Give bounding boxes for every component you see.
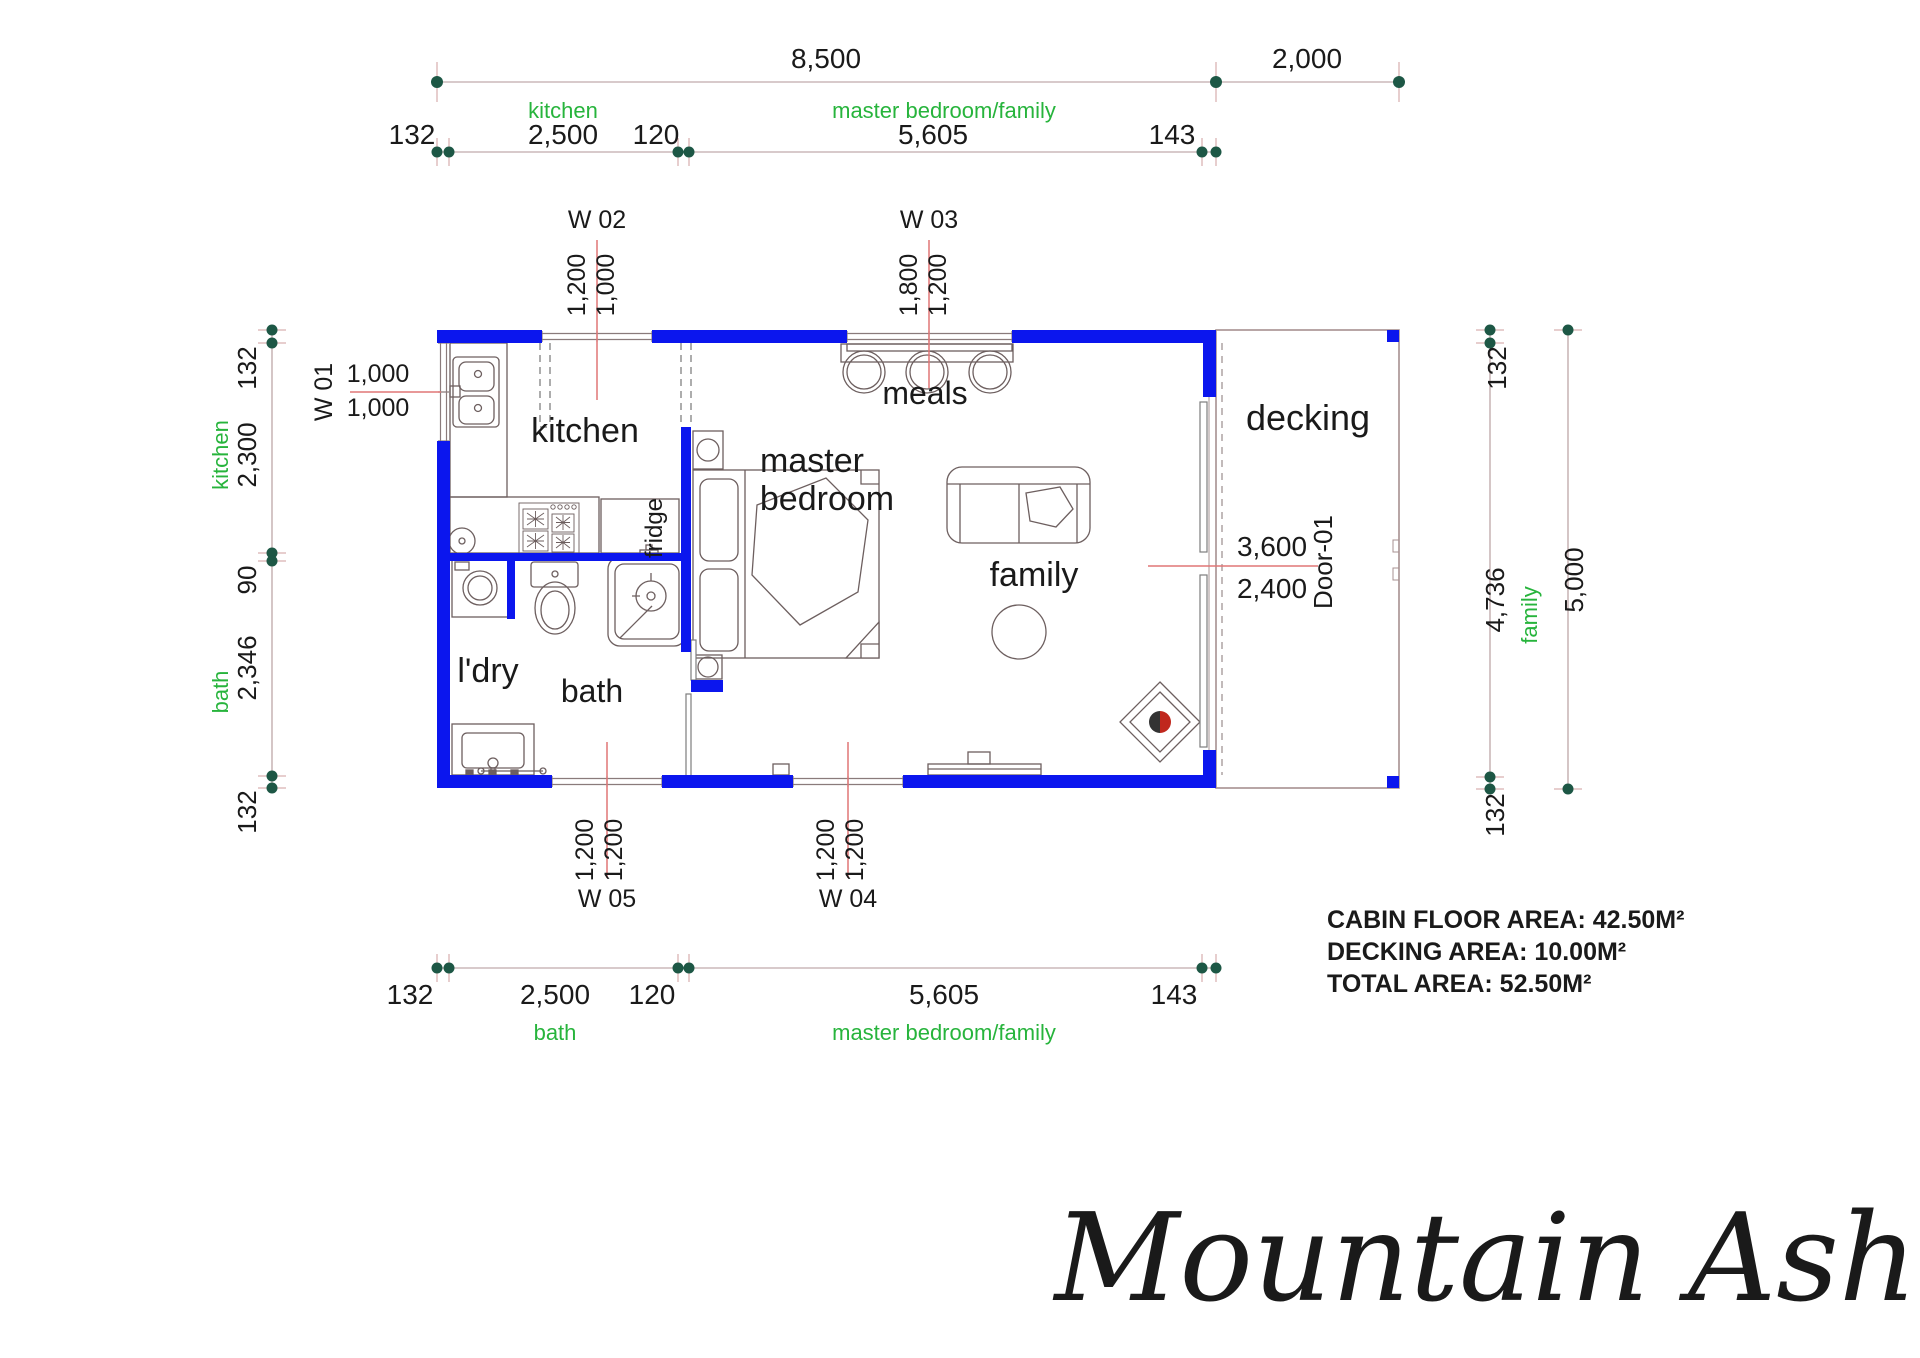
- door-01-dim-a: 3,600: [1237, 531, 1307, 562]
- dim-top-e: 143: [1149, 119, 1196, 150]
- window-label-w02: W 02: [568, 206, 626, 234]
- window-label-w05: W 05: [578, 885, 636, 913]
- dim-right-c: 132: [1480, 793, 1510, 836]
- round-sink: [449, 528, 475, 554]
- dim-right-overall: 5,000: [1559, 547, 1589, 612]
- interior-wall: [507, 561, 515, 619]
- dim-left-a: 132: [232, 346, 262, 389]
- area-total: TOTAL AREA: 52.50M²: [1327, 970, 1591, 998]
- room-label-kitchen: kitchen: [531, 412, 639, 450]
- sofa: [947, 467, 1090, 543]
- dim-room-bottom-right: master bedroom/family: [832, 1020, 1056, 1045]
- basin: [452, 724, 534, 775]
- window-w01-dim-a: 1,000: [347, 360, 410, 388]
- cooktop: [519, 503, 579, 553]
- window-w03-dim-a: 1,800: [895, 254, 923, 317]
- window-w05-dim-b: 1,200: [600, 819, 628, 882]
- window-label-w01: W 01: [310, 363, 338, 421]
- dim-left-d: 2,346: [232, 635, 262, 700]
- window-w02-dim-b: 1,000: [592, 254, 620, 317]
- room-label-master-2: bedroom: [760, 480, 894, 518]
- dim-decking-width: 2,000: [1272, 43, 1342, 74]
- dim-right-room-family: family: [1517, 586, 1542, 643]
- meals-bench: [841, 344, 1013, 362]
- floor-plan-page: 8,500 2,000 kitchen master bedroom/famil…: [0, 0, 1920, 1358]
- window-label-w04: W 04: [819, 885, 877, 913]
- room-label-ldry: l'dry: [457, 652, 518, 690]
- interior-wall: [681, 427, 691, 652]
- dim-right-b: 4,736: [1480, 567, 1510, 632]
- window-w04-dim-a: 1,200: [812, 819, 840, 882]
- window-w02-dim-a: 1,200: [563, 254, 591, 317]
- room-label-meals: meals: [882, 375, 967, 411]
- window-w03-dim-b: 1,200: [924, 254, 952, 317]
- dim-left-e: 132: [232, 790, 262, 833]
- window-w05-dim-a: 1,200: [571, 819, 599, 882]
- deck-post: [1387, 330, 1399, 342]
- plan-title: Mountain Ash: [1053, 1187, 1918, 1329]
- dimension-ticks: [258, 62, 1582, 982]
- dim-bottom-e: 143: [1151, 979, 1198, 1010]
- door-01-panels: [1200, 397, 1209, 750]
- dim-left-b: 2,300: [232, 422, 262, 487]
- deck-post: [1387, 776, 1399, 788]
- floor-plan-drawing: 8,500 2,000 kitchen master bedroom/famil…: [0, 0, 1920, 1358]
- window-label-w03: W 03: [900, 206, 958, 234]
- window-w04-dim-b: 1,200: [841, 819, 869, 882]
- wood-heater: [1120, 682, 1200, 762]
- window-w01-dim-b: 1,000: [347, 394, 410, 422]
- room-label-bath: bath: [561, 673, 623, 709]
- dim-overall-width: 8,500: [791, 43, 861, 74]
- round-table: [992, 605, 1046, 659]
- room-label-master-1: master: [760, 442, 864, 480]
- dim-bottom-c: 120: [629, 979, 676, 1010]
- dim-left-c: 90: [232, 566, 262, 595]
- dim-bottom-d: 5,605: [909, 979, 979, 1010]
- dim-left-room-kitchen: kitchen: [208, 420, 233, 490]
- area-decking: DECKING AREA: 10.00M²: [1327, 938, 1626, 966]
- room-label-decking: decking: [1246, 397, 1370, 438]
- area-cabin: CABIN FLOOR AREA: 42.50M²: [1327, 906, 1684, 934]
- door-01-dim-b: 2,400: [1237, 573, 1307, 604]
- interior-wall: [691, 680, 723, 692]
- dim-left-room-bath: bath: [208, 671, 233, 714]
- dim-bottom-a: 132: [387, 979, 434, 1010]
- dim-bottom-b: 2,500: [520, 979, 590, 1010]
- washing-machine: [452, 560, 508, 617]
- dim-top-c: 120: [633, 119, 680, 150]
- dim-room-bottom-left: bath: [534, 1020, 577, 1045]
- label-fridge: fridge: [641, 498, 668, 558]
- dim-top-d: 5,605: [898, 119, 968, 150]
- dim-top-b: 2,500: [528, 119, 598, 150]
- room-label-family: family: [990, 556, 1079, 594]
- door-label-01: Door-01: [1308, 515, 1338, 609]
- bath-door-panels: [686, 640, 696, 785]
- dim-top-a: 132: [389, 119, 436, 150]
- dim-right-a: 132: [1482, 346, 1512, 389]
- toilet: [531, 562, 578, 634]
